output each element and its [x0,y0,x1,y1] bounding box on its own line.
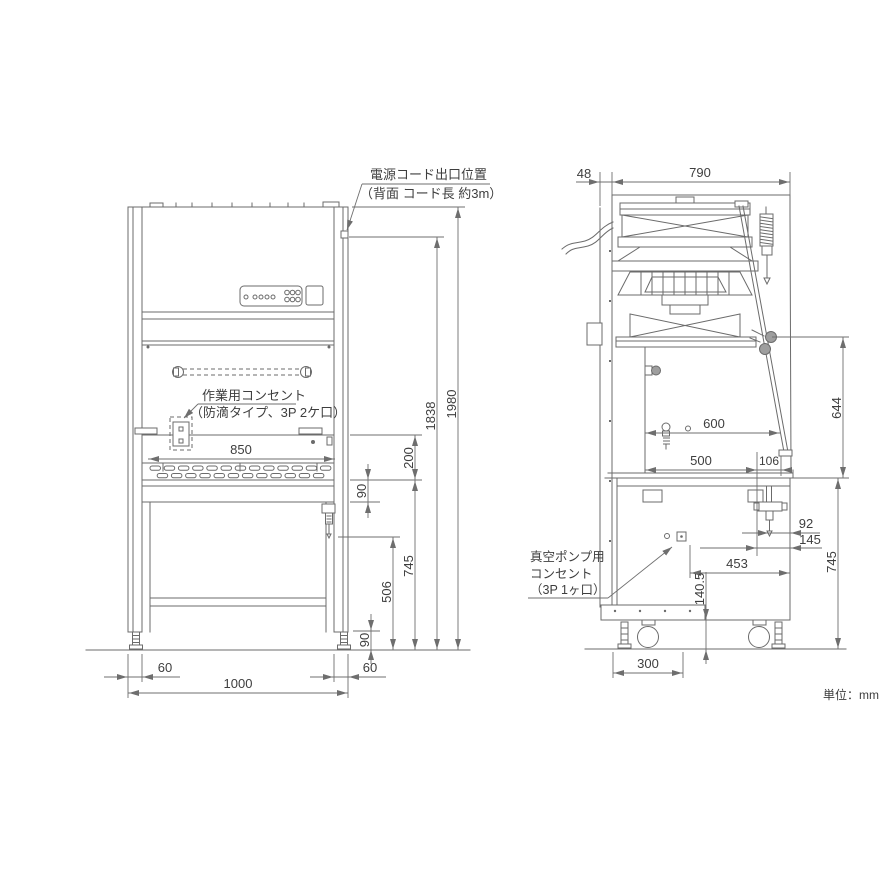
dim-500: 500 [690,453,712,468]
leveling-foot-left [130,632,143,649]
front-view: 電源コード出口位置 （背面 コード長 約3m） 作業用コンセント （防滴タイプ、… [86,167,502,698]
side-switch-panel [306,286,323,305]
sash-handle [779,450,792,456]
dim-90-apron: 90 [354,484,369,498]
cord-exit-fitting [341,231,348,238]
dim-106: 106 [759,454,779,468]
dim-1980: 1980 [444,390,459,419]
power-cord [562,222,613,254]
work-outlet-label-1: 作業用コンセント [202,388,306,403]
sash-counterbalance [750,207,777,355]
right-tab [299,428,322,434]
sensor-dot [311,440,315,444]
front-grille [150,463,331,478]
interior-cock [652,366,661,375]
sash-stop [327,437,332,445]
pulley [760,344,771,355]
vacuum-label-1: 真空ポンプ用 [530,550,605,564]
stand-frame [150,502,326,632]
work-outlet-label-2: （防滴タイプ、3P 2ケ口） [190,405,346,420]
power-cord-label-1: 電源コード出口位置 [370,167,487,182]
dim-506: 506 [379,581,394,603]
top-edge [128,202,348,238]
control-panel [240,286,323,306]
dim-1000: 1000 [224,676,253,691]
gas-cock [322,504,335,538]
dim-140-5: 140.5 [692,573,707,606]
dim-200: 200 [401,447,416,469]
dim-60-right: 60 [363,660,377,675]
dim-453: 453 [726,556,748,571]
dim-1838: 1838 [423,402,438,431]
dim-90-foot: 90 [357,633,372,647]
dim-300: 300 [637,656,659,671]
power-cord-label-2: （背面 コード長 約3m） [360,186,502,201]
blower-assembly [612,197,758,347]
left-tab [135,428,157,434]
power-cord-callout: 電源コード出口位置 （背面 コード長 約3m） [347,167,502,230]
dim-745-front: 745 [401,555,416,577]
unit-note: 単位：mm [823,687,879,702]
work-chamber [645,347,691,473]
dim-745-side: 745 [824,551,839,573]
technical-drawing-page: 電源コード出口位置 （背面 コード長 約3m） 作業用コンセント （防滴タイプ、… [0,0,880,880]
dim-600: 600 [703,416,725,431]
uv-lamp [173,367,312,378]
dim-145: 145 [799,532,821,547]
work-outlet [170,417,192,450]
dim-850: 850 [230,442,252,457]
side-view: 真空ポンプ用 コンセント （3P 1ヶ口） 48 790 600 [528,165,849,678]
wall-hole [686,426,691,431]
work-outlet-callout: 作業用コンセント （防滴タイプ、3P 2ケ口） [184,388,346,420]
kick-plate [601,605,705,620]
leveling-foot-left [618,622,631,648]
dim-644: 644 [829,397,844,419]
left-post [128,207,142,632]
dim-60-left: 60 [158,660,172,675]
front-dimensions: 850 200 90 90 [104,207,465,698]
leveling-foot-right [772,622,785,648]
dim-790: 790 [689,165,711,180]
dim-48: 48 [577,166,591,181]
worktop [605,470,793,478]
vacuum-label-3: （3P 1ヶ口） [530,583,606,597]
front-edge [790,215,791,470]
caster [749,627,770,648]
dim-92: 92 [799,516,813,531]
caster [638,627,659,648]
drawing-canvas: 電源コード出口位置 （背面 コード長 約3m） 作業用コンセント （防滴タイプ、… [0,0,880,880]
leveling-foot-right [338,632,351,649]
vacuum-label-2: コンセント [530,567,593,581]
tap-fixture [662,423,670,431]
